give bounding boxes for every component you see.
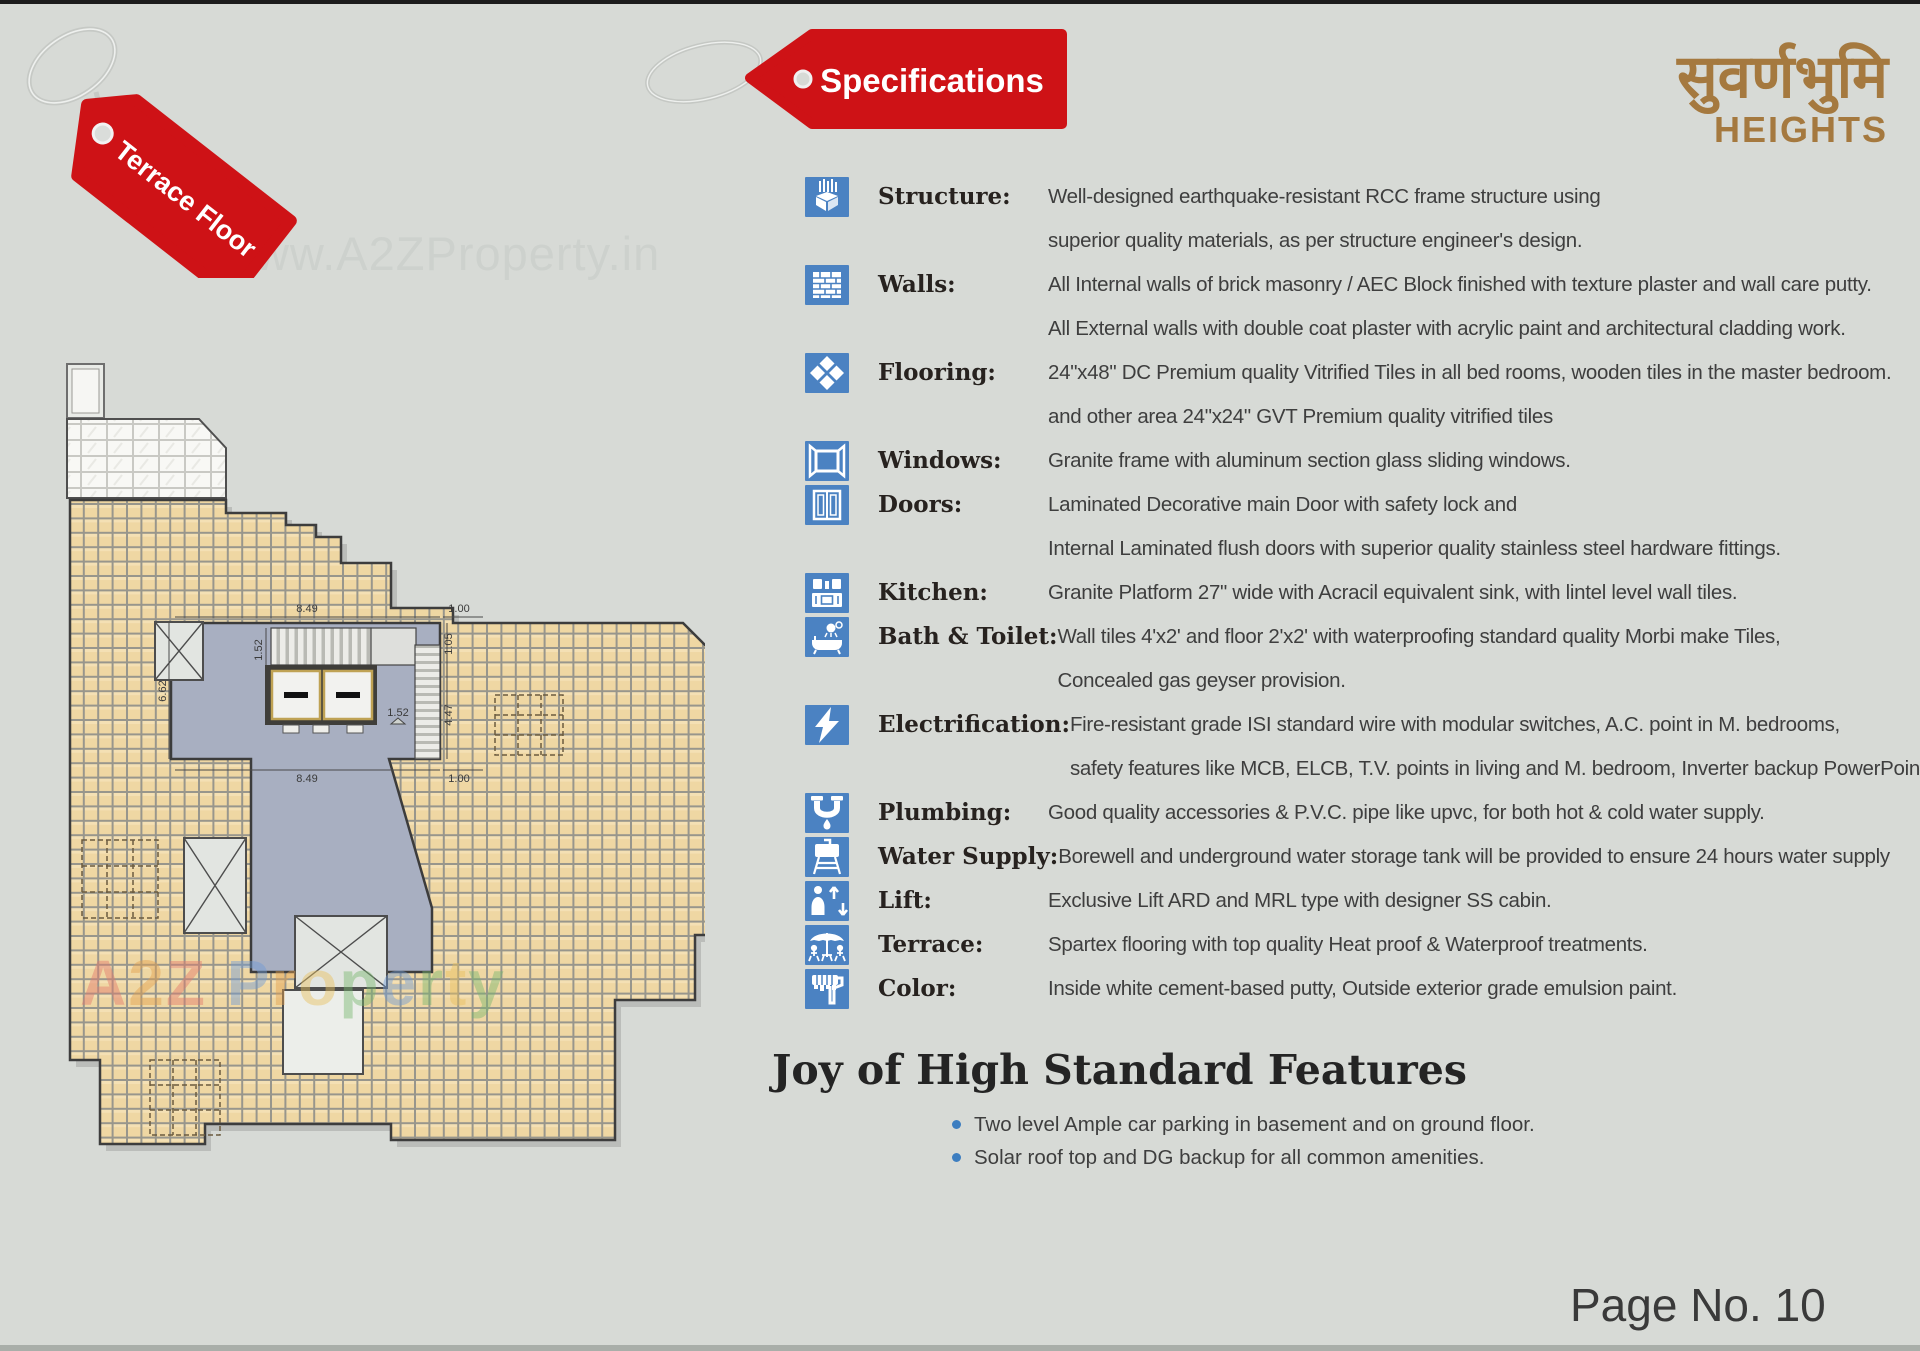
- spec-description: All Internal walls of brick masonry / AE…: [1048, 263, 1885, 351]
- spec-label: Bath & Toilet:: [878, 615, 1058, 659]
- windows-icon: [805, 441, 849, 481]
- spec-description: Laminated Decorative main Door with safe…: [1048, 483, 1885, 571]
- spec-label: Lift:: [878, 879, 1048, 923]
- page-number: Page No. 10: [1570, 1278, 1826, 1332]
- spec-label: Terrace:: [878, 923, 1048, 967]
- feature-item: Solar roof top and DG backup for all com…: [952, 1141, 1535, 1174]
- spec-label: Kitchen:: [878, 571, 1048, 615]
- spec-description: Exclusive Lift ARD and MRL type with des…: [1048, 879, 1885, 923]
- spec-description: Granite Platform 27" wide with Acracil e…: [1048, 571, 1885, 615]
- dim-849-bottom: 8.49: [296, 773, 317, 785]
- bottom-divider: [0, 1345, 1920, 1351]
- plan-stairs-top: [271, 628, 371, 665]
- spec-description: Borewell and underground water storage t…: [1058, 835, 1890, 879]
- plan-duct-2: [184, 838, 246, 933]
- dim-100-bottom: 1.00: [448, 773, 469, 785]
- spec-label: Flooring:: [878, 351, 1048, 395]
- bath-toilet-icon: [805, 617, 849, 657]
- spec-label: Doors:: [878, 483, 1048, 527]
- spec-label: Structure:: [878, 175, 1048, 219]
- specifications-title: Specifications: [820, 62, 1044, 99]
- spec-description: Good quality accessories & P.V.C. pipe l…: [1048, 791, 1885, 835]
- brand-name-devanagari: सुवर्णभुमि: [1468, 44, 1888, 110]
- color-icon: [805, 969, 849, 1009]
- spec-row-water-supply: Water Supply: Borewell and underground w…: [805, 835, 1885, 879]
- spec-description: Spartex flooring with top quality Heat p…: [1048, 923, 1885, 967]
- tag-hole-icon: [795, 71, 811, 87]
- feature-item: Two level Ample car parking in basement …: [952, 1108, 1535, 1141]
- spec-row-bath-toilet: Bath & Toilet: Wall tiles 4'x2' and floo…: [805, 615, 1885, 703]
- specifications-tag: Specifications: [632, 28, 1072, 132]
- dim-152-mid: 1.52: [387, 707, 408, 719]
- top-divider: [0, 0, 1920, 4]
- spec-label: Electrification:: [878, 703, 1070, 747]
- spec-description: Inside white cement-based putty, Outside…: [1048, 967, 1885, 1011]
- spec-row-terrace: Terrace: Spartex flooring with top quali…: [805, 923, 1885, 967]
- plan-rooftop-box: [67, 364, 104, 418]
- plan-duct-1: [155, 622, 203, 680]
- specifications-list: Structure: Well-designed earthquake-resi…: [805, 175, 1885, 1011]
- structure-icon: [805, 177, 849, 217]
- walls-icon: [805, 265, 849, 305]
- spec-description: 24"x48" DC Premium quality Vitrified Til…: [1048, 351, 1891, 439]
- spec-label: Color:: [878, 967, 1048, 1011]
- features-title: Joy of High Standard Features: [772, 1046, 1467, 1094]
- spec-row-walls: Walls: All Internal walls of brick mason…: [805, 263, 1885, 351]
- spec-label: Windows:: [878, 439, 1048, 483]
- spec-description: Granite frame with aluminum section glas…: [1048, 439, 1885, 483]
- spec-label: Walls:: [878, 263, 1048, 307]
- plumbing-icon: [805, 793, 849, 833]
- plan-stairs-right: [415, 645, 440, 759]
- features-list: Two level Ample car parking in basement …: [952, 1108, 1535, 1174]
- electrification-icon: [805, 705, 849, 745]
- terrace-floor-tag: Terrace Floor: [20, 8, 360, 278]
- brochure-page: www.A2ZProperty.in Terrace Floor: [0, 0, 1920, 1351]
- brand-logo: सुवर्णभुमि HEIGHTS: [1468, 44, 1888, 150]
- doors-icon: [805, 485, 849, 525]
- spec-description: Fire-resistant grade ISI standard wire w…: [1070, 703, 1920, 791]
- spec-row-color: Color: Inside white cement-based putty, …: [805, 967, 1885, 1011]
- spec-row-lift: Lift: Exclusive Lift ARD and MRL type wi…: [805, 879, 1885, 923]
- dim-100-top: 1.00: [448, 603, 469, 615]
- dim-447-right: 4.47: [443, 704, 455, 725]
- dim-105-right: 1.05: [443, 633, 455, 654]
- terrace-floor-plan: 8.49 1.00 1.52 1.05 6.62 4.47 1.52 8.49 …: [55, 360, 705, 1190]
- dim-849-top: 8.49: [296, 603, 317, 615]
- spec-row-kitchen: Kitchen: Granite Platform 27" wide with …: [805, 571, 1885, 615]
- spec-description: Well-designed earthquake-resistant RCC f…: [1048, 175, 1885, 263]
- bullet-icon: [952, 1120, 961, 1129]
- spec-description: Wall tiles 4'x2' and floor 2'x2' with wa…: [1058, 615, 1885, 703]
- spec-row-structure: Structure: Well-designed earthquake-resi…: [805, 175, 1885, 263]
- bullet-icon: [952, 1153, 961, 1162]
- water-supply-icon: [805, 837, 849, 877]
- kitchen-icon: [805, 573, 849, 613]
- lift-icon: [805, 881, 849, 921]
- plan-glass-area: [67, 419, 226, 498]
- plan-lift-block: [265, 665, 377, 733]
- watermark-a2z: A2Z Property: [80, 946, 506, 1020]
- dim-152-left: 1.52: [253, 639, 265, 660]
- spec-row-plumbing: Plumbing: Good quality accessories & P.V…: [805, 791, 1885, 835]
- spec-row-electrification: Electrification: Fire-resistant grade IS…: [805, 703, 1885, 791]
- brand-name-heights: HEIGHTS: [1468, 110, 1888, 150]
- spec-row-flooring: Flooring: 24"x48" DC Premium quality Vit…: [805, 351, 1885, 439]
- plan-stair-landing: [371, 628, 416, 665]
- dim-662-left: 6.62: [157, 680, 169, 701]
- spec-row-windows: Windows: Granite frame with aluminum sec…: [805, 439, 1885, 483]
- terrace-icon: [805, 925, 849, 965]
- spec-label: Plumbing:: [878, 791, 1048, 835]
- spec-label: Water Supply:: [878, 835, 1058, 879]
- spec-row-doors: Doors: Laminated Decorative main Door wi…: [805, 483, 1885, 571]
- flooring-icon: [805, 353, 849, 393]
